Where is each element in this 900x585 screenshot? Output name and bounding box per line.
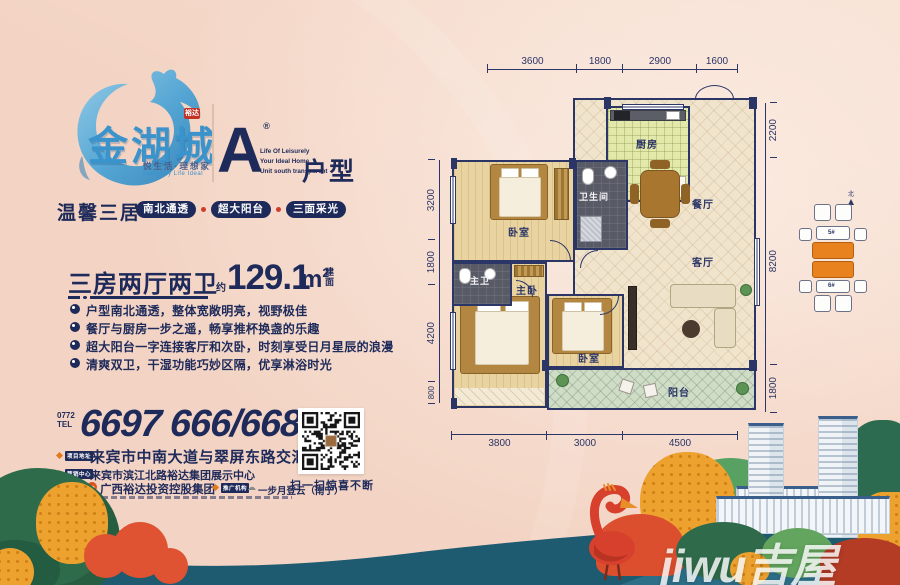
dim-segment: 1800 (424, 240, 440, 285)
flamingo-icon (572, 482, 644, 582)
site-building (835, 204, 852, 221)
toilet (582, 168, 594, 185)
feature-item: 清爽双卫，干湿功能巧妙区隔，优享淋浴时光 (70, 356, 332, 373)
tag-pill-3: 三面采光 (286, 201, 346, 218)
shower-area (580, 216, 602, 242)
dim-segment: 800 (424, 382, 440, 403)
dims-bottom: 3800 3000 4500 (452, 434, 737, 450)
site-building (835, 295, 852, 312)
dining-chair (650, 219, 670, 228)
window (754, 238, 760, 306)
dim-segment: 8200 (765, 158, 781, 365)
unit-reg-mark: ® (263, 121, 270, 131)
feature-item: 户型南北通透，整体宽敞明亮，视野极佳 (70, 302, 307, 319)
bullet-icon (70, 340, 80, 350)
dining-chair (650, 160, 670, 169)
site-building (799, 228, 812, 241)
title-underline-short (68, 296, 80, 299)
feature-text: 超大阳台一字连接客厅和次卧，时刻享受日月星辰的浪漫 (86, 338, 394, 355)
master-bed (460, 296, 540, 374)
entry-door-arc (695, 85, 715, 99)
coffee-table (682, 320, 700, 338)
dim-segment: 1600 (697, 54, 737, 70)
dim-segment: 3200 (424, 160, 440, 240)
layout-title: 三房两厅两卫 (68, 264, 218, 299)
bullet-icon (70, 358, 80, 368)
bullet-icon (70, 322, 80, 332)
dining-table (640, 170, 680, 218)
dim-segment: 3800 (452, 434, 547, 450)
dim-segment: 2900 (623, 54, 697, 70)
wall-pillar (451, 398, 457, 409)
feature-item: 超大阳台一字连接客厅和次卧，时刻享受日月星辰的浪漫 (70, 338, 394, 355)
tel-label: TEL (57, 420, 75, 429)
dim-value: 1800 (426, 251, 437, 273)
feature-text: 户型南北通透，整体宽敞明亮，视野极佳 (86, 302, 307, 319)
qr-code (298, 408, 364, 474)
dim-value: 1800 (768, 377, 779, 399)
area-number: 129.1 (227, 258, 310, 298)
wall-pillar (569, 158, 576, 169)
dim-value: 2200 (768, 119, 779, 141)
dim-segment: 3600 (488, 54, 577, 70)
sofa (670, 284, 736, 308)
balcony-plant (556, 374, 569, 387)
feature-text: 餐厅与厨房一步之遥，畅享推杯换盏的乐趣 (86, 320, 320, 337)
bed (490, 164, 548, 220)
mattress (562, 311, 604, 351)
logo-seal: 裕达 (184, 108, 200, 119)
master-bay-tile (455, 388, 544, 405)
mattress (475, 311, 529, 365)
dims-right: 2200 8200 1800 (765, 103, 781, 412)
site-building-6-label: 6# (828, 283, 835, 289)
tv-cabinet (628, 286, 637, 350)
pillow (521, 168, 539, 178)
dim-segment: 1800 (765, 365, 781, 412)
dim-value: 1600 (706, 56, 728, 67)
dim-value: 3000 (574, 438, 596, 449)
wardrobe (554, 168, 569, 220)
phone-prefix: 0772 TEL (57, 411, 75, 429)
headline: 温馨三居 (57, 198, 141, 225)
dim-value: 3200 (426, 189, 437, 211)
dim-value: 800 (427, 386, 436, 399)
wall-pillar (749, 97, 757, 109)
pillow (564, 302, 582, 312)
logo-tagline-en: Leisurely Life Ideal (143, 171, 203, 177)
room-label-living: 客厅 (692, 254, 714, 269)
dims-top: 3600 1800 2900 1600 (488, 54, 737, 70)
dim-value: 8200 (768, 250, 779, 272)
approx-label: 约 (216, 279, 226, 294)
site-building-highlight (812, 242, 854, 259)
room-label-balcony: 阳台 (668, 384, 690, 399)
room-label-kitchen: 厨房 (636, 136, 658, 151)
poster: 金湖城 裕达 悦生活·理想家 Leisurely Life Ideal A® L… (0, 0, 900, 585)
room-label-bedroom1: 卧室 (508, 224, 530, 239)
tag-pill-1: 南北通透 (136, 201, 196, 218)
room-label-bathroom: 卫生间 (579, 190, 609, 203)
dim-value: 3800 (488, 438, 510, 449)
dining-chair (630, 184, 639, 204)
dims-left: 3200 1800 4200 800 (424, 160, 440, 403)
window (622, 104, 684, 110)
site-building (799, 280, 812, 293)
area-unit-m: m (301, 266, 322, 293)
site-building-highlight (812, 261, 854, 278)
room-label-dining: 餐厅 (692, 196, 714, 211)
site-building (814, 295, 831, 312)
wall-pillar (451, 158, 457, 169)
entry-door-arc (714, 85, 734, 99)
window (450, 176, 456, 224)
feature-item: 餐厅与厨房一步之遥，畅享推杯换盏的乐趣 (70, 320, 320, 337)
room-label-master-bedroom: 主卧 (516, 282, 538, 297)
site-building (854, 228, 867, 241)
balcony-plant (736, 382, 749, 395)
bullet-icon (70, 304, 80, 314)
room-label-bedroom2: 卧室 (578, 350, 600, 365)
area-code: 0772 (57, 411, 75, 420)
mattress (499, 177, 541, 217)
site-building (854, 280, 867, 293)
wall-pillar (749, 360, 757, 371)
room-label-master-bath: 主卫 (470, 274, 490, 287)
qr-caption: 扫一扫惊喜不断 (290, 477, 374, 493)
site-building-5-label: 5# (828, 230, 835, 236)
agency-label-chip: 推广机构 (221, 483, 249, 493)
watermark: jiwu吉屋 (660, 530, 835, 585)
pill-separator-dot (201, 207, 206, 212)
site-plan: 北 5# 6# (798, 192, 870, 316)
developer-name: 广西裕达投资控股集团 (100, 481, 215, 497)
area-suffix: 建面 (325, 267, 335, 288)
pill-separator-dot (276, 207, 281, 212)
agency-cloud-icon: ☁ (247, 482, 256, 493)
qr-canvas (302, 412, 360, 470)
pillow (501, 168, 519, 178)
logo-divider (212, 104, 214, 182)
compass-label: 北 (848, 192, 854, 198)
tag-pill-2: 超大阳台 (211, 201, 271, 218)
address1-label-chip: 项目地址 (65, 451, 93, 461)
unit-suffix: 户型 (302, 152, 356, 188)
phone-number: 6697 666/668 (78, 403, 301, 446)
unit-letter-text: A (217, 114, 263, 186)
feature-text: 清爽双卫，干湿功能巧妙区隔，优享淋浴时光 (86, 356, 332, 373)
floor-plan: 厨房 卫生间 餐厅 客厅 卧室 主卫 主卧 卧室 阳台 (452, 98, 756, 412)
kitchen-stove (614, 111, 630, 120)
dim-segment: 3000 (547, 434, 623, 450)
address1: 来宾市中南大道与翠屏东路交汇处 (90, 446, 323, 467)
dim-segment: 1800 (577, 54, 623, 70)
dining-chair (681, 184, 690, 204)
dim-value: 2900 (649, 56, 671, 67)
bush-red-lobe (152, 548, 188, 584)
wall-pillar (604, 97, 611, 109)
dim-segment: 4500 (623, 434, 737, 450)
wash-basin (604, 166, 617, 179)
dim-segment: 4200 (424, 285, 440, 382)
dim-value: 4200 (426, 322, 437, 344)
window (450, 312, 456, 370)
balcony-chair (643, 383, 658, 398)
title-underline-long (90, 296, 208, 299)
living-plant (740, 284, 752, 296)
dim-value: 4500 (669, 438, 691, 449)
dim-value: 1800 (589, 56, 611, 67)
wardrobe (514, 265, 544, 277)
site-building (814, 204, 831, 221)
dim-value: 3600 (521, 56, 543, 67)
sofa-chaise (714, 308, 736, 348)
kitchen-sink (666, 111, 680, 120)
dim-segment: 2200 (765, 103, 781, 158)
title-underline-dot (83, 296, 87, 299)
wall-pillar (542, 360, 549, 371)
